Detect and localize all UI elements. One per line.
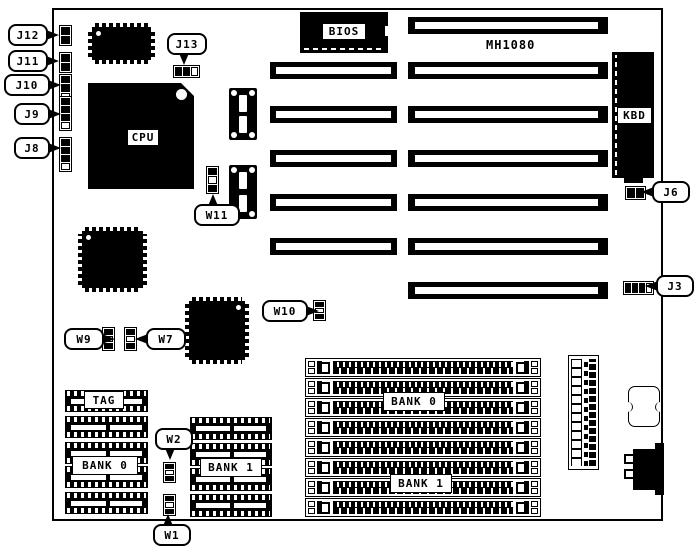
isa-slot: [270, 238, 397, 255]
callout-w11: W11: [194, 204, 240, 226]
arrow-left-icon: [645, 281, 658, 291]
bios-label: BIOS: [322, 23, 366, 40]
jumper-w1: [163, 494, 176, 516]
arrow-right-icon: [46, 30, 59, 40]
callout-j3-label: J3: [667, 280, 682, 293]
callout-j13: J13: [167, 33, 207, 55]
callout-j12-label: J12: [17, 29, 40, 42]
cache-bank0-label: BANK 0: [72, 456, 138, 475]
simm-bank0-label: BANK 0: [383, 392, 445, 411]
arrow-up-icon: [163, 514, 173, 526]
arrow-left-icon: [641, 187, 654, 197]
isa-slot: [408, 62, 608, 79]
chip-center: [185, 297, 249, 364]
callout-j3: J3: [656, 275, 694, 297]
arrow-right-icon: [48, 109, 61, 119]
crystal-outline: [628, 386, 660, 427]
chip-topleft: [88, 23, 155, 64]
arrow-down-icon: [179, 53, 189, 65]
simm-socket: [305, 358, 541, 377]
din-connector-tab: [624, 454, 635, 464]
callout-j11: J11: [8, 50, 48, 72]
din-connector-edge: [655, 443, 664, 495]
callout-j9: J9: [14, 103, 50, 125]
arrow-right-icon: [46, 56, 59, 66]
callout-j12: J12: [8, 24, 48, 46]
kbd-label: KBD: [617, 107, 652, 124]
callout-w9-label: W9: [76, 333, 91, 346]
isa-slot: [408, 106, 608, 123]
dip-row: [190, 494, 272, 517]
callout-w2: W2: [155, 428, 193, 450]
jumper-w2: [163, 462, 176, 483]
isa-slot: [408, 194, 608, 211]
jumper-j12: [59, 25, 72, 46]
arrow-left-icon: [135, 334, 148, 344]
jumper-j11: [59, 52, 72, 73]
callout-w11-label: W11: [206, 209, 229, 222]
power-connector: [568, 355, 599, 470]
isa-slot: [270, 62, 397, 79]
callout-j10: J10: [4, 74, 50, 96]
dip-row: [190, 417, 272, 440]
arrow-right-icon: [48, 143, 61, 153]
callout-j9-label: J9: [24, 108, 39, 121]
dip-row: [65, 492, 148, 514]
callout-w1: W1: [153, 524, 191, 546]
isa-slot: [270, 194, 397, 211]
arrow-right-icon: [306, 306, 319, 316]
isa-slot: [408, 150, 608, 167]
callout-j6-label: J6: [663, 186, 678, 199]
din-connector-tab: [624, 469, 635, 479]
isa-slot: [408, 17, 608, 34]
board-model: MH1080: [486, 38, 535, 52]
callout-j6: J6: [652, 181, 690, 203]
isa-slot: [270, 106, 397, 123]
arrow-right-icon: [102, 334, 115, 344]
simm-socket: [305, 418, 541, 437]
callout-w7: W7: [146, 328, 186, 350]
simm-socket: [305, 438, 541, 457]
callout-j13-label: J13: [176, 38, 199, 51]
header-connector: [229, 88, 257, 140]
callout-w9: W9: [64, 328, 104, 350]
cpu-label: CPU: [127, 129, 159, 146]
isa-slot: [270, 150, 397, 167]
callout-w1-label: W1: [164, 529, 179, 542]
simm-socket: [305, 498, 541, 517]
jumper-w11: [206, 166, 219, 194]
simm-bank1-label: BANK 1: [390, 474, 452, 493]
callout-w7-label: W7: [158, 333, 173, 346]
arrow-down-icon: [165, 448, 175, 460]
isa-slot: [408, 282, 608, 299]
dip-row: [65, 416, 148, 438]
callout-j11-label: J11: [17, 55, 40, 68]
callout-j8-label: J8: [24, 142, 39, 155]
chip-midleft: [78, 227, 147, 292]
callout-w10: W10: [262, 300, 308, 322]
cache-bank1-label: BANK 1: [200, 458, 262, 477]
motherboard-diagram: J12 J11 J10 J9 J8 J13 CPU W11 BIOS MH108…: [0, 0, 699, 552]
arrow-up-icon: [208, 194, 218, 206]
arrow-right-icon: [48, 80, 61, 90]
isa-slot: [408, 238, 608, 255]
callout-w2-label: W2: [166, 433, 181, 446]
callout-j8: J8: [14, 137, 50, 159]
callout-j10-label: J10: [16, 79, 39, 92]
jumper-j13: [173, 65, 200, 78]
callout-w10-label: W10: [274, 305, 297, 318]
tag-label: TAG: [84, 391, 124, 409]
